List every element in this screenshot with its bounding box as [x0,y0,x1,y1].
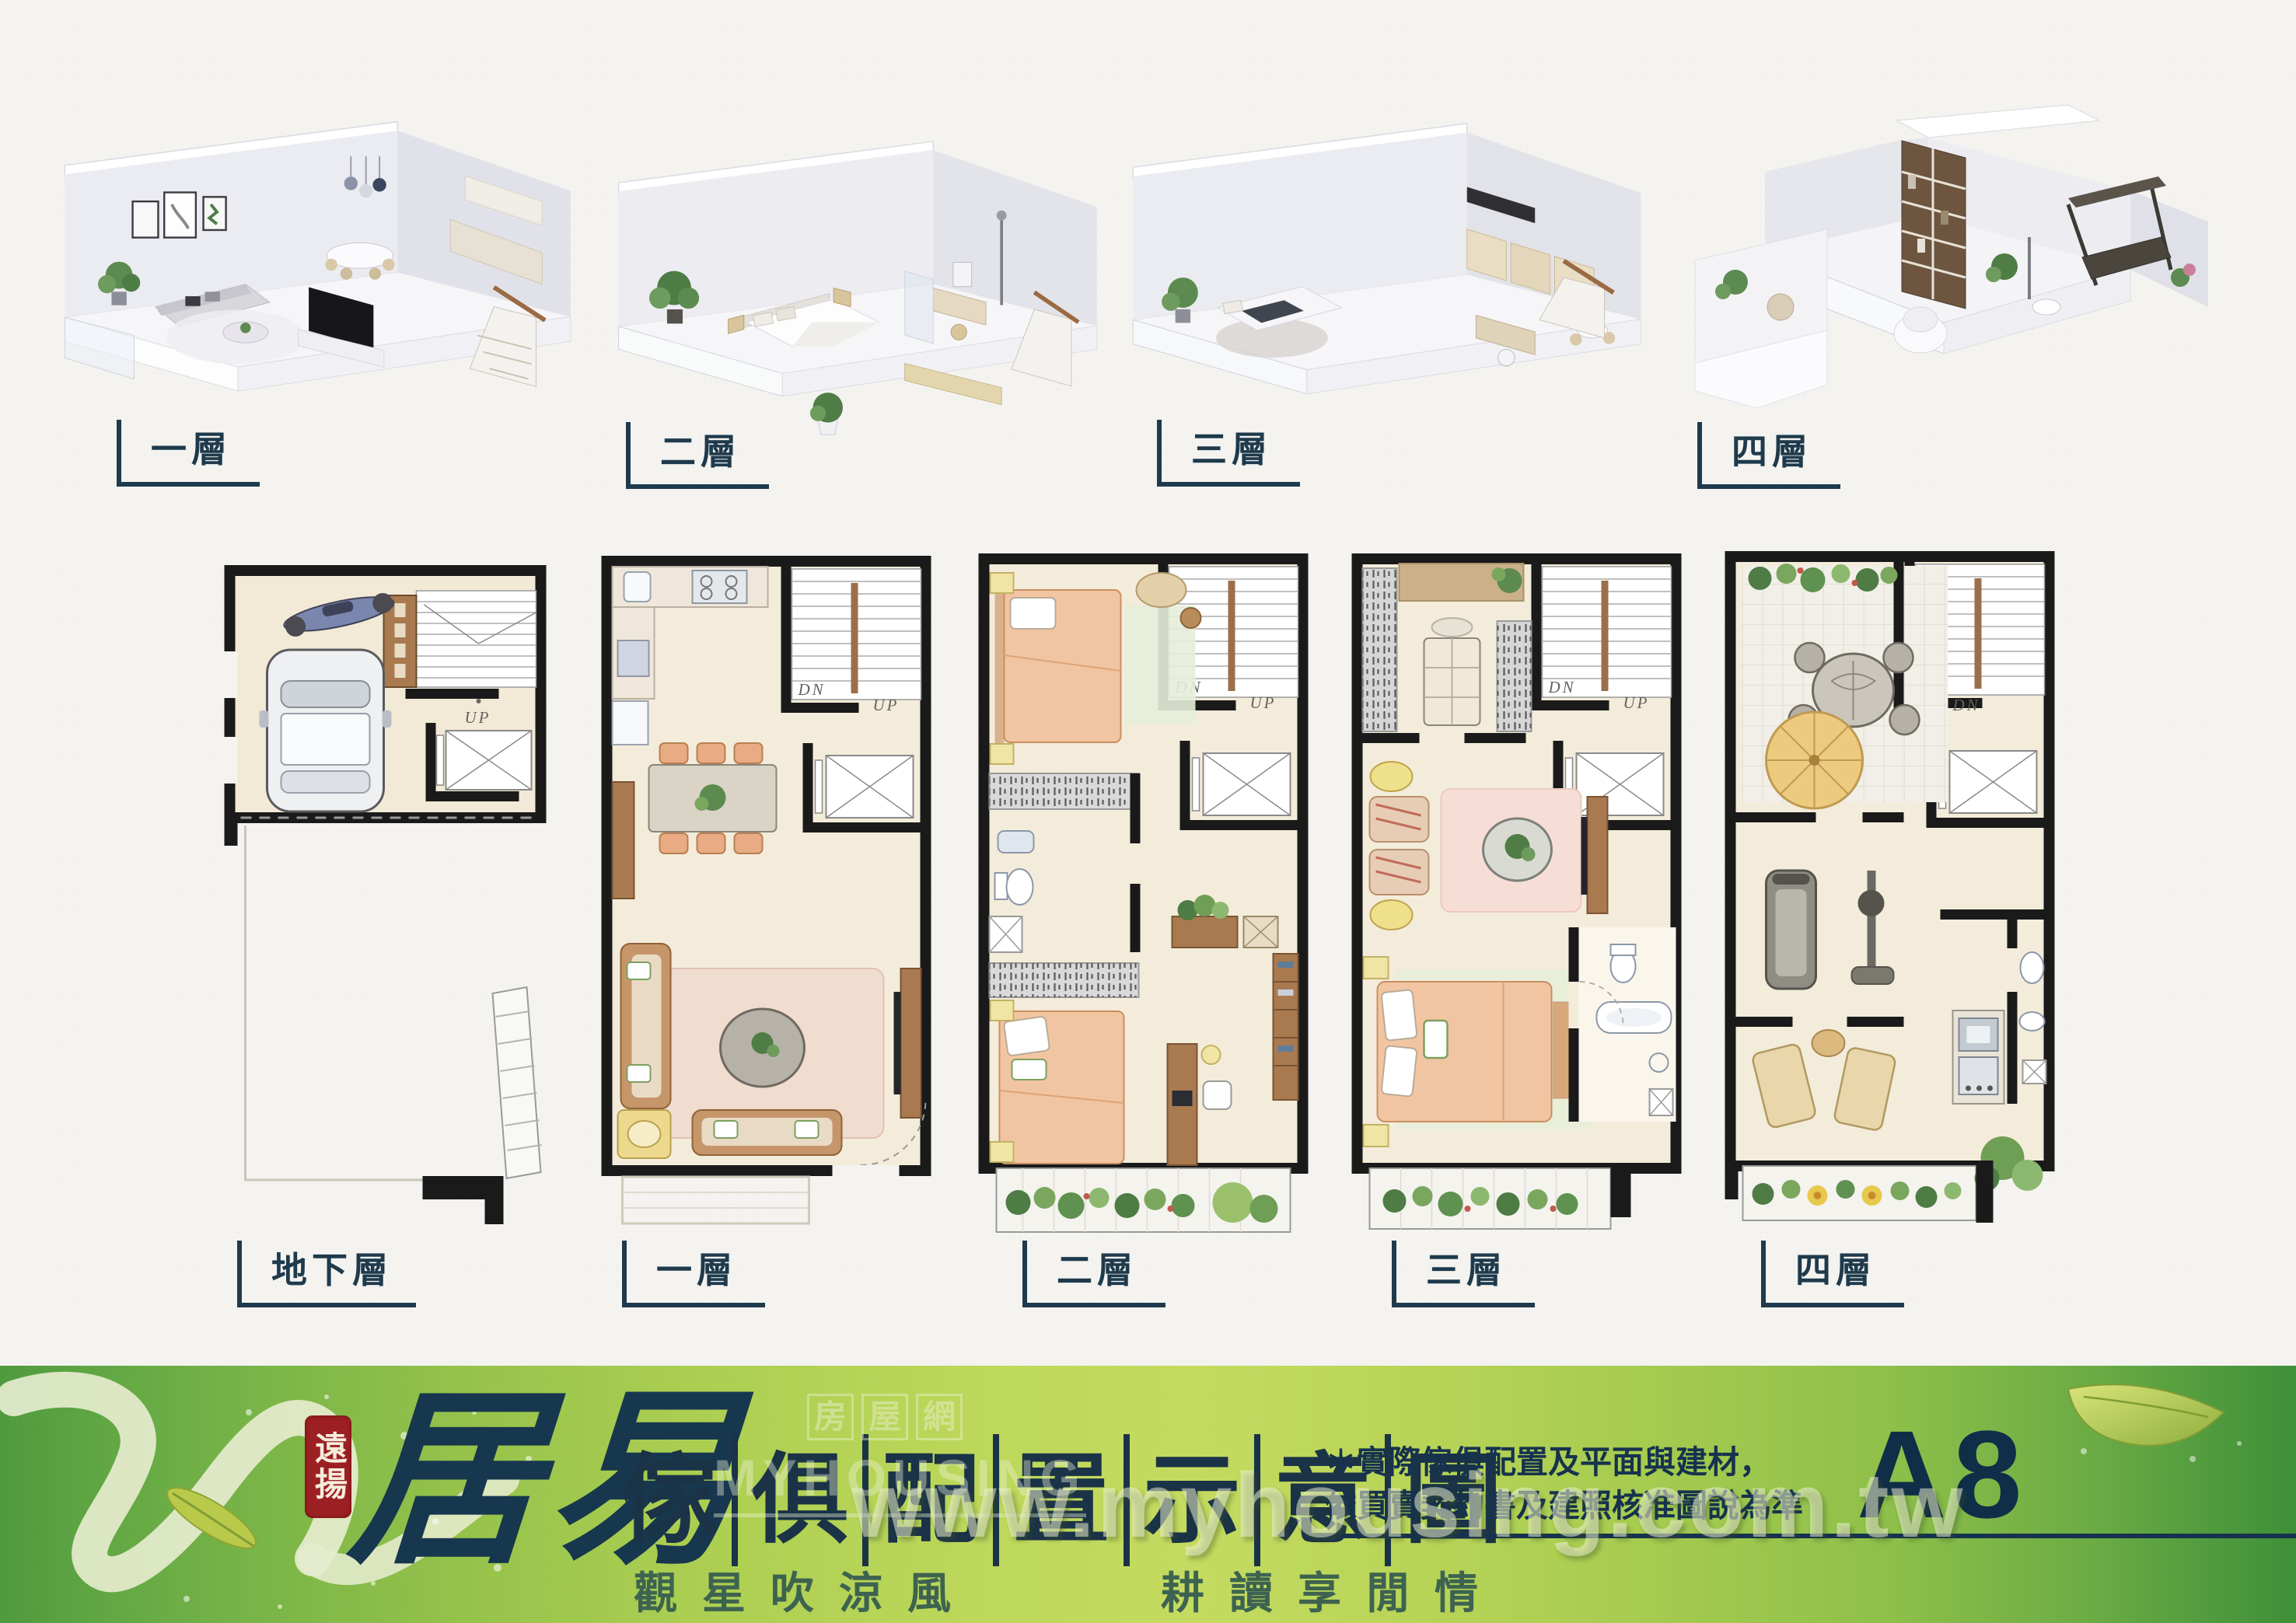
watermark-box-char: 屋 [861,1394,908,1440]
glass-partition [905,271,934,344]
tall-cabinet [613,782,634,899]
closet-strip-2 [990,963,1139,997]
label-text: 二層 [1057,1250,1138,1290]
render-label-floor-1: 一層 [117,420,260,487]
stairwell: DN UP [781,566,921,714]
label-text: 地下層 [271,1250,393,1290]
terrace-slab [1695,229,1827,408]
stair-up-label: UP [873,696,900,714]
walk-in-closet [1363,564,1532,743]
plan-label-4f: 四層 [1761,1241,1904,1307]
floor-plan-3f: DN UP [1347,546,1686,1246]
closet-strip-1 [990,773,1139,809]
render-3d-floor-2 [599,97,1104,455]
footer-banner: 遠揚 居易 傢 俱 配 置 示 意 圖 觀星吹涼風 耕讀享閒情 ＊實際傢俱配置及… [0,1366,2296,1623]
floor-plan-2f: DN UP [974,546,1312,1246]
label-text: 一層 [151,429,232,469]
master-bed [1364,957,1591,1147]
room-shell [1133,124,1641,394]
coffee-table [223,322,268,343]
leaf-art-right [2037,1366,2270,1475]
banner-slogan: 觀星吹涼風 耕讀享閒情 [634,1558,1503,1621]
slogan-right: 耕讀享閒情 [1161,1558,1503,1621]
bedroom-2 [991,1000,1124,1164]
label-text: 三層 [1426,1250,1507,1290]
stair-up-label: UP [1250,693,1277,712]
label-text: 四層 [1795,1250,1876,1290]
roof-terrace [1742,561,1948,808]
stair-dn-label: DN [1548,678,1576,696]
balcony-planter [1370,1163,1631,1229]
render-label-floor-3: 三層 [1157,420,1300,487]
stairwell: DN UP [1532,564,1672,712]
watermark-url: www.myhousing.com.tw [851,1453,1965,1558]
render-label-floor-2: 二層 [626,422,769,489]
courtyard [225,818,479,1180]
potted-bush [810,393,843,435]
plan-label-1f: 一層 [622,1241,765,1307]
label-text: 三層 [1191,429,1272,469]
floor-plan-4f: DN [1721,544,2059,1244]
label-text: 一層 [656,1250,737,1290]
stair-up-label: UP [465,708,491,727]
balcony-planter [997,1168,1291,1232]
watermark-box-char: 網 [916,1394,963,1440]
render-3d-floor-1 [39,87,583,441]
floor-plan-basement: UP [220,558,558,1258]
stair-up-label: UP [1623,693,1650,712]
label-text: 二層 [660,431,741,472]
kitchenette [1953,1010,2004,1104]
stair-dn-label: DN [798,680,826,699]
bookshelf [1274,954,1298,1100]
title-char: 傢 [620,1451,718,1549]
dining-set [649,743,777,853]
render-3d-floor-3 [1112,86,1648,447]
watermark-boxes: 房 屋 網 [807,1394,1086,1440]
label-text: 四層 [1732,431,1812,472]
watermark-box-char: 房 [807,1394,854,1440]
plan-label-2f: 二層 [1022,1241,1165,1307]
car [260,650,392,811]
driveway-ramp [423,987,542,1224]
logo-seal: 遠揚 [305,1415,351,1518]
render-label-floor-4: 四層 [1697,422,1840,489]
front-porch [623,1177,809,1223]
slogan-left: 觀星吹涼風 [634,1558,976,1621]
floor-plan-1f: DN UP [597,549,935,1248]
bookshelf [1902,141,1966,309]
plan-label-basement: 地下層 [237,1241,416,1307]
render-3d-floor-4 [1664,74,2224,462]
seal-text: 遠揚 [305,1431,352,1503]
stair-dn-label: DN [1952,696,1980,714]
bathroom [1569,927,1676,1122]
room-shell [1765,105,2208,354]
living-room [618,944,884,1158]
plan-label-3f: 三層 [1392,1241,1535,1307]
